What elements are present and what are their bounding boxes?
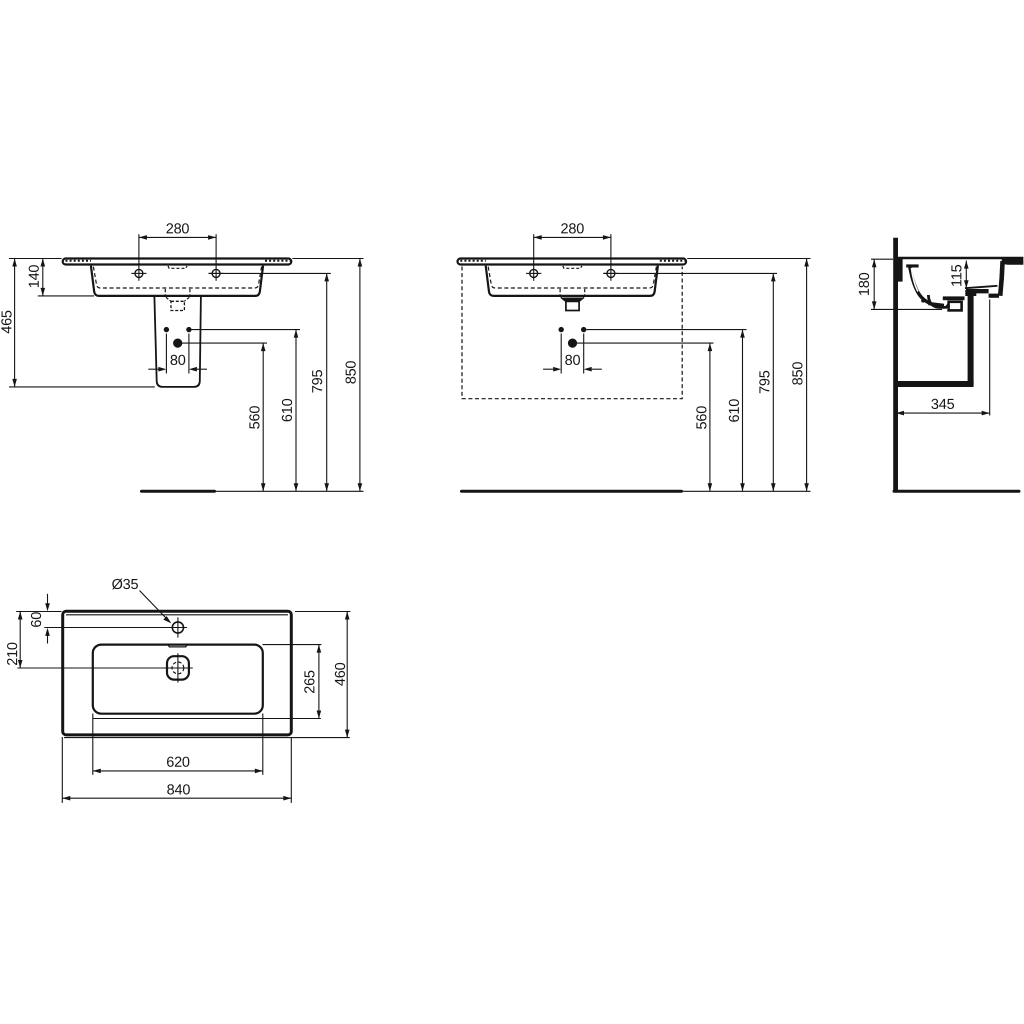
svg-text:795: 795 [310,369,326,393]
svg-text:840: 840 [167,782,191,798]
svg-text:80: 80 [565,353,581,369]
svg-text:850: 850 [790,362,806,386]
svg-text:465: 465 [0,310,15,334]
svg-text:60: 60 [29,612,45,628]
svg-text:610: 610 [280,398,296,422]
svg-text:610: 610 [727,399,743,423]
svg-text:560: 560 [694,406,710,430]
svg-text:460: 460 [333,662,349,686]
svg-text:265: 265 [302,670,318,694]
svg-text:140: 140 [27,265,43,289]
svg-text:Ø35: Ø35 [112,577,139,593]
svg-text:280: 280 [166,221,190,237]
svg-text:115: 115 [949,264,965,287]
svg-text:620: 620 [166,755,190,771]
svg-text:850: 850 [344,361,360,385]
svg-text:80: 80 [170,353,186,369]
svg-text:210: 210 [5,642,21,666]
svg-text:560: 560 [247,406,263,430]
svg-text:345: 345 [931,397,955,413]
svg-text:180: 180 [857,272,873,296]
svg-text:795: 795 [757,370,773,394]
svg-text:280: 280 [560,221,584,237]
